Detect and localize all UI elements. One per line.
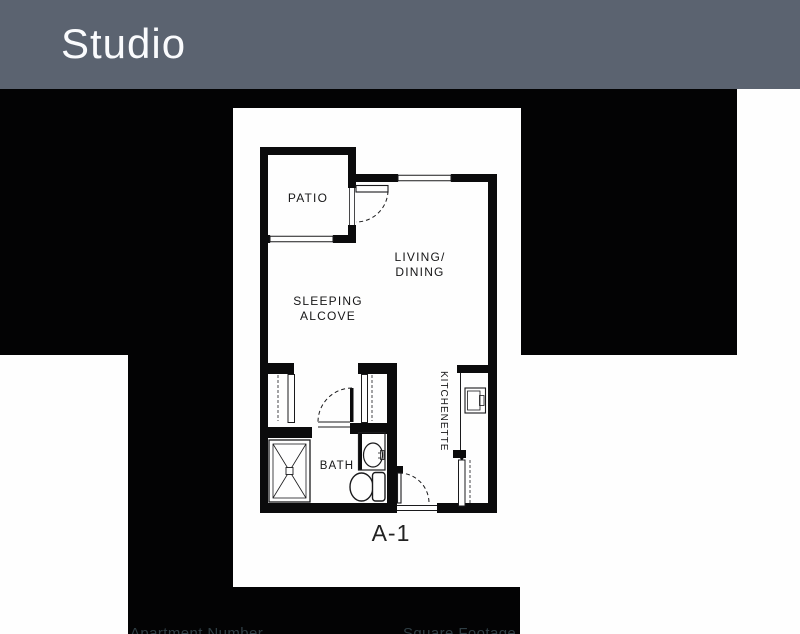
kitchenette-fixtures xyxy=(459,373,486,506)
room-label-living-dining: LIVING/ DINING xyxy=(380,250,460,280)
page-header: Studio xyxy=(0,0,800,89)
windows xyxy=(270,174,451,243)
room-label-patio: PATIO xyxy=(277,191,339,206)
footer-square-footage-label: Square Footage xyxy=(403,625,516,634)
sleeping-line1: SLEEPING xyxy=(278,294,378,309)
room-label-bath: BATH xyxy=(311,459,363,474)
closet-doors xyxy=(278,370,372,426)
living-line2: DINING xyxy=(380,265,460,280)
footer-apartment-number-label: Apartment Number xyxy=(130,625,263,634)
toilet xyxy=(350,473,385,502)
brochure-page: Studio xyxy=(0,0,800,634)
room-label-sleeping-alcove: SLEEPING ALCOVE xyxy=(278,294,378,324)
room-label-kitchenette: KITCHENETTE xyxy=(436,366,450,456)
unit-label: A-1 xyxy=(351,526,431,541)
floor-plan-panel: PATIO LIVING/ DINING SLEEPING ALCOVE BAT… xyxy=(233,108,521,587)
entry-door xyxy=(397,473,437,513)
page-title: Studio xyxy=(61,20,186,68)
patio-door xyxy=(356,186,388,223)
floor-plan-drawing xyxy=(233,108,521,587)
bath-door xyxy=(318,388,354,428)
shower xyxy=(269,440,310,502)
sleeping-line2: ALCOVE xyxy=(278,309,378,324)
living-line1: LIVING/ xyxy=(380,250,460,265)
